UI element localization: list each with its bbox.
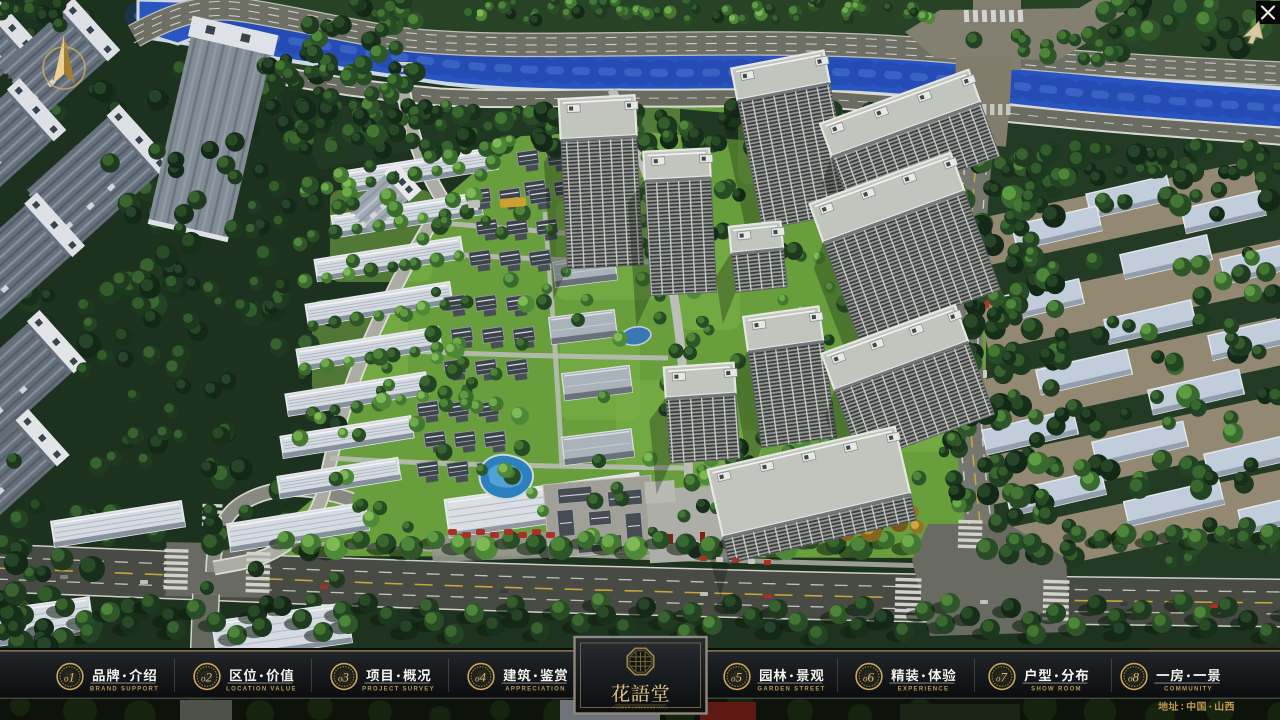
svg-text:PROJECT SURVEY: PROJECT SURVEY bbox=[362, 687, 435, 693]
svg-text:APPRECIATION: APPRECIATION bbox=[505, 687, 566, 693]
svg-text:EXPERIENCE: EXPERIENCE bbox=[898, 687, 950, 693]
svg-text:GARDEN STREET: GARDEN STREET bbox=[757, 687, 825, 693]
svg-text:SHOW ROOM: SHOW ROOM bbox=[1031, 687, 1082, 693]
svg-text:LOCATION VALUE: LOCATION VALUE bbox=[226, 687, 297, 693]
svg-text:BRAND SUPPORT: BRAND SUPPORT bbox=[90, 687, 159, 693]
svg-text:COMMUNITY: COMMUNITY bbox=[1164, 687, 1213, 693]
svg-text:FLOWER LANGUAGE HALL: FLOWER LANGUAGE HALL bbox=[613, 705, 668, 709]
